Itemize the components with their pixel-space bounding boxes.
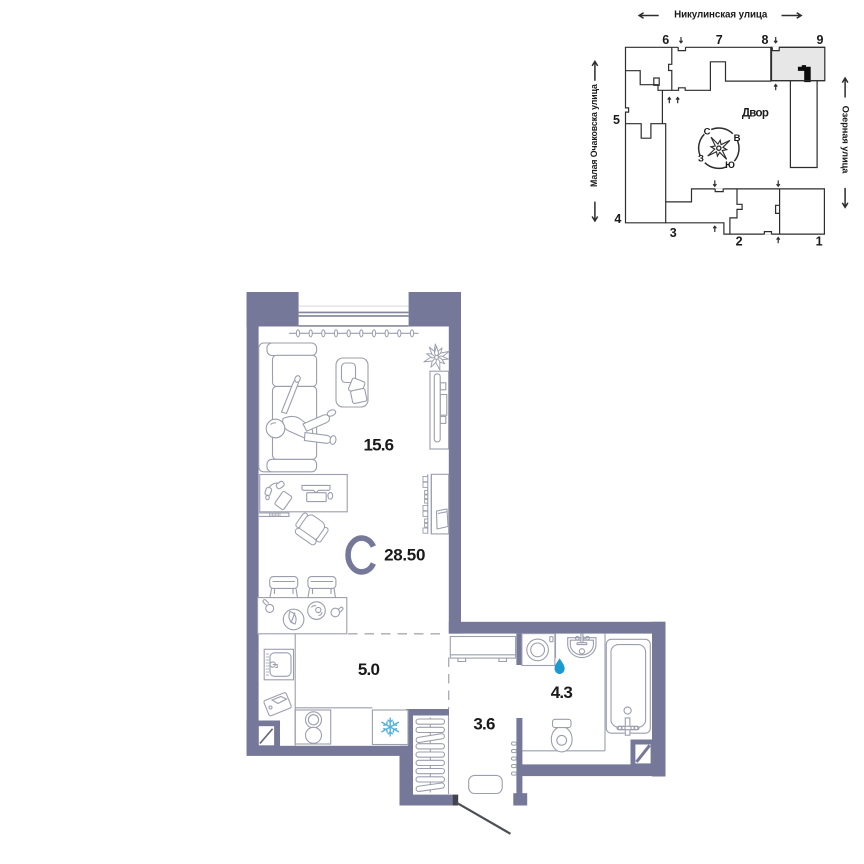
svg-text:З: З: [698, 154, 704, 165]
svg-text:7: 7: [716, 33, 723, 47]
svg-text:4: 4: [614, 212, 621, 226]
svg-text:1: 1: [816, 235, 823, 249]
svg-text:Ю: Ю: [725, 160, 735, 171]
svg-text:5.0: 5.0: [358, 660, 380, 679]
svg-text:С: С: [704, 127, 711, 138]
svg-text:28.50: 28.50: [384, 546, 425, 565]
svg-text:Двор: Двор: [742, 107, 769, 119]
svg-text:5: 5: [613, 113, 620, 127]
svg-text:6: 6: [662, 33, 669, 47]
svg-text:Малая Очаковска улица: Малая Очаковска улица: [589, 84, 599, 187]
svg-text:Никулинская улица: Никулинская улица: [674, 10, 768, 21]
svg-text:9: 9: [817, 33, 824, 47]
svg-text:3.6: 3.6: [473, 715, 495, 734]
svg-text:15.6: 15.6: [363, 436, 393, 455]
svg-text:В: В: [734, 133, 741, 144]
svg-text:Озерная улица: Озерная улица: [840, 106, 850, 175]
svg-text:3: 3: [670, 226, 677, 240]
svg-text:2: 2: [736, 235, 743, 249]
svg-text:4.3: 4.3: [551, 683, 573, 702]
svg-text:8: 8: [762, 33, 769, 47]
